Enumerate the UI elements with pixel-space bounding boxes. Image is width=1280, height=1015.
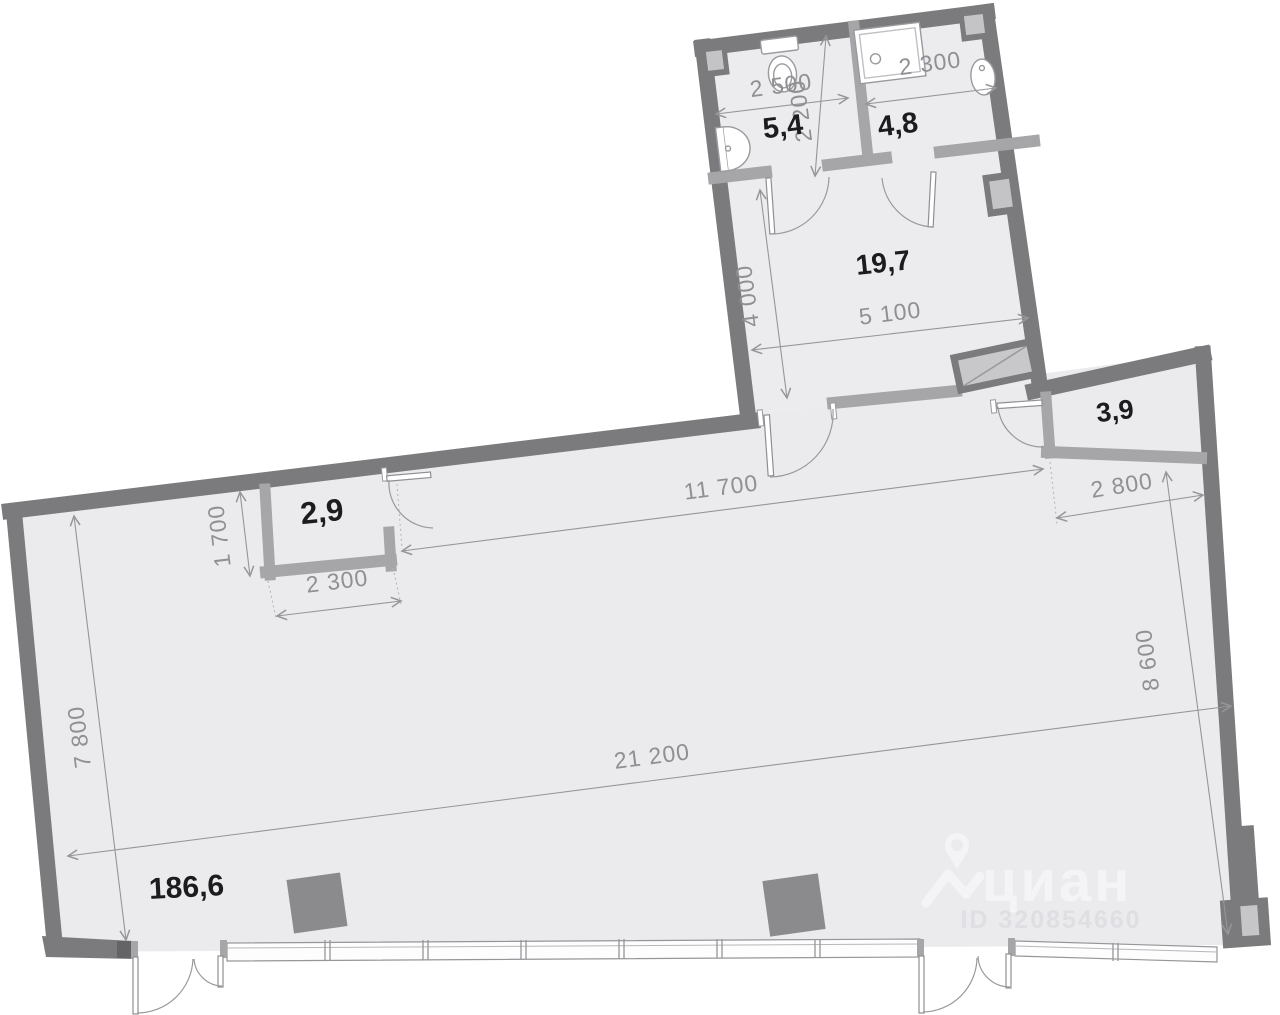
room-area-label-main: 186,6 <box>148 869 225 906</box>
door-leaf-entrance-left-b <box>218 956 223 987</box>
watermark-id: ID 320854660 <box>960 906 1141 934</box>
door-arc-entrance-left-a <box>137 959 193 1013</box>
vent-shaft-1 <box>700 45 729 78</box>
partition-storageleft-right <box>389 532 391 566</box>
floorplan-canvas: циан ID 320854660 <box>0 0 1280 1015</box>
partition-bath-bottom-2 <box>828 158 886 165</box>
partition-bath-bottom-1 <box>714 172 766 178</box>
room-area-label-storageright: 3,9 <box>1094 394 1135 428</box>
partition-storageright-left <box>1046 397 1050 453</box>
room-area-label-storageleft: 2,9 <box>299 492 346 531</box>
vent-shaft-3 <box>982 171 1020 217</box>
window-band-left <box>227 939 920 961</box>
room-area-label-bath1: 5,4 <box>761 109 805 146</box>
partition-storageleft-left <box>265 489 270 575</box>
room-area-label-hall: 19,7 <box>854 244 911 281</box>
column-2 <box>762 873 825 936</box>
door-arc-entrance-right-a <box>923 958 977 1012</box>
door-leaf-entrance-right-b <box>1006 954 1011 988</box>
column-1 <box>287 873 348 934</box>
door-leaf-entrance-left-a <box>133 957 138 1014</box>
floorplan-screenshot: циан ID 320854660 <box>0 0 1280 1015</box>
door-leaf-entrance-right-a <box>919 956 924 1013</box>
vent-shaft-2 <box>958 8 991 41</box>
door-arc-entrance-right-b <box>978 956 1010 987</box>
watermark-brand: циан <box>982 849 1133 914</box>
partition-storageright-bottom <box>1047 452 1201 458</box>
room-area-label-bath2: 4,8 <box>876 107 920 144</box>
